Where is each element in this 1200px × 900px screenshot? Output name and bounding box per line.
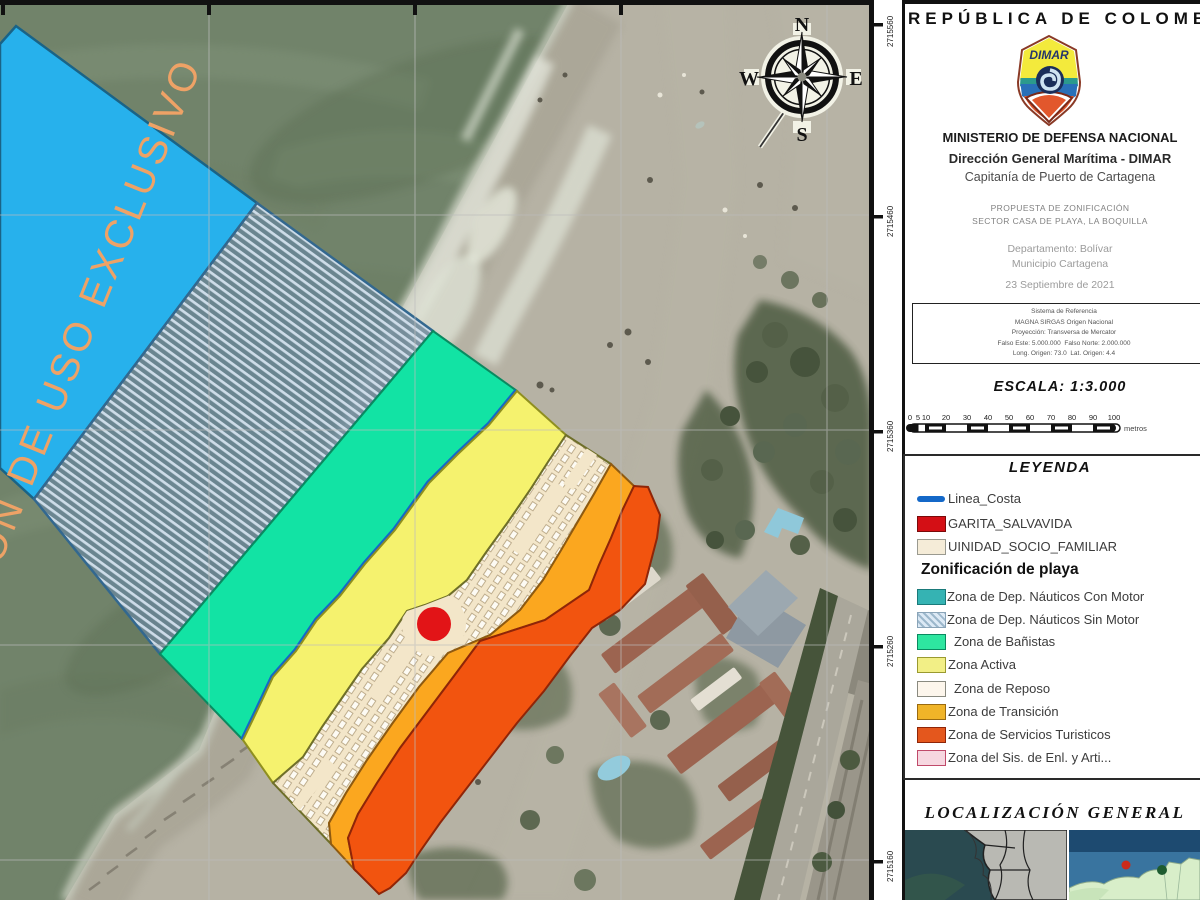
svg-text:80: 80 bbox=[1068, 413, 1076, 422]
svg-text:E: E bbox=[849, 68, 862, 90]
svg-text:0: 0 bbox=[908, 413, 912, 422]
svg-text:metros: metros bbox=[1124, 424, 1147, 433]
svg-text:60: 60 bbox=[1026, 413, 1034, 422]
svg-text:2715460: 2715460 bbox=[886, 205, 895, 237]
svg-text:2715160: 2715160 bbox=[886, 850, 895, 882]
svg-text:50: 50 bbox=[1005, 413, 1013, 422]
svg-text:2715260: 2715260 bbox=[886, 635, 895, 667]
svg-text:40: 40 bbox=[984, 413, 992, 422]
svg-text:N: N bbox=[795, 14, 810, 36]
svg-text:30: 30 bbox=[963, 413, 971, 422]
svg-text:2715560: 2715560 bbox=[886, 15, 895, 47]
svg-text:2715360: 2715360 bbox=[886, 420, 895, 452]
svg-text:W: W bbox=[739, 68, 759, 90]
svg-text:70: 70 bbox=[1047, 413, 1055, 422]
svg-text:5: 5 bbox=[916, 413, 920, 422]
svg-text:S: S bbox=[796, 124, 807, 146]
svg-text:20: 20 bbox=[942, 413, 950, 422]
svg-text:90: 90 bbox=[1089, 413, 1097, 422]
svg-text:100: 100 bbox=[1108, 413, 1121, 422]
svg-text:10: 10 bbox=[922, 413, 930, 422]
svg-text:DIMAR: DIMAR bbox=[1029, 48, 1069, 62]
